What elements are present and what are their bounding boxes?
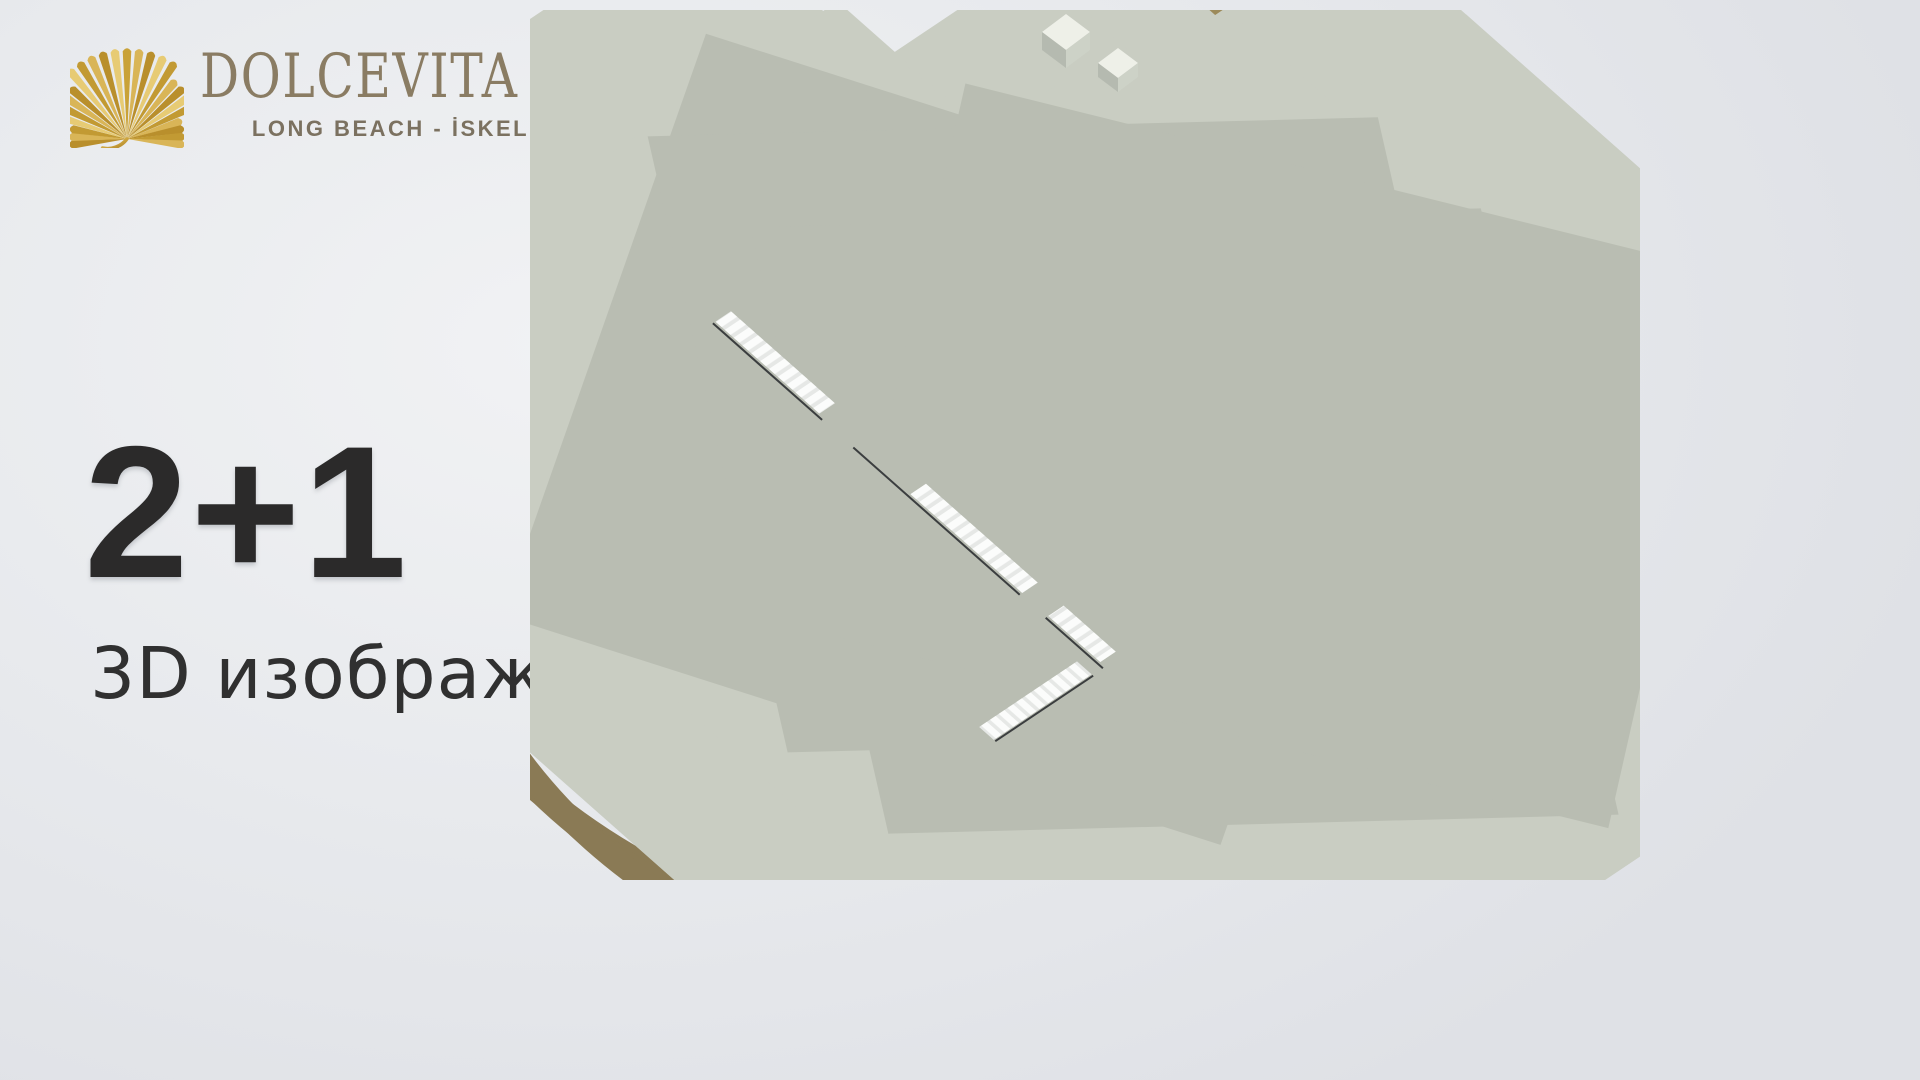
floor-plan-3d [530, 10, 1640, 880]
palm-leaf-icon [70, 34, 184, 148]
doors [922, 300, 1315, 603]
unit-type-headline: 2+1 [84, 418, 409, 606]
brand-logo: DOLCEVITA LONG BEACH - İSKELE [70, 34, 598, 148]
marketing-slide: DOLCEVITA LONG BEACH - İSKELE 2+1 3D изо… [0, 0, 1920, 1080]
brand-tagline: LONG BEACH - İSKELE [252, 116, 546, 142]
brand-name: DOLCEVITA [200, 46, 519, 107]
